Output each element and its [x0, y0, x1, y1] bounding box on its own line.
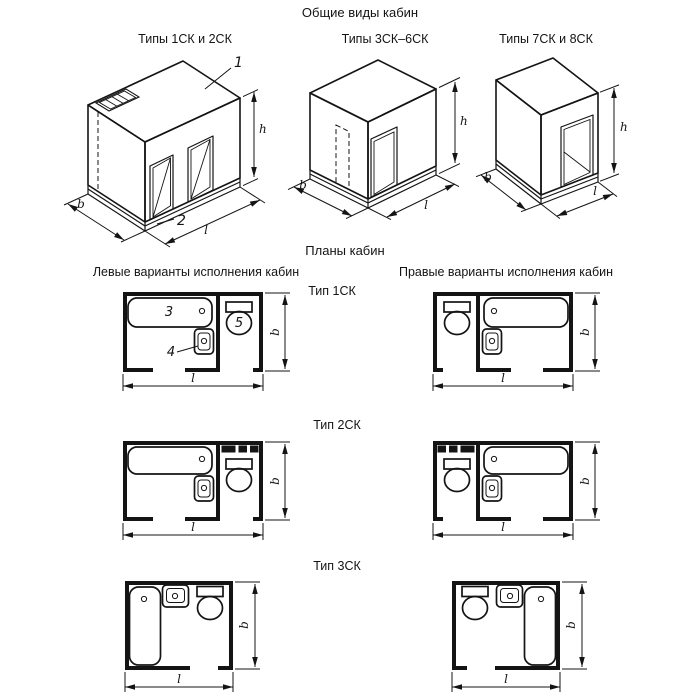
washbasin	[195, 329, 214, 354]
dimension-h: h	[439, 78, 468, 174]
dimension-l: l	[433, 371, 573, 391]
dim-l-label: l	[191, 520, 195, 534]
dimension-b: b	[265, 442, 290, 520]
dim-h-label: h	[620, 120, 628, 134]
plan-3sk-right: l b	[444, 574, 604, 699]
dim-b-label: b	[578, 477, 592, 485]
dim-l-label: l	[504, 672, 508, 686]
dim-h-label: h	[460, 114, 468, 128]
dim-b-label: b	[77, 197, 85, 211]
dimension-b: b	[476, 169, 541, 212]
dim-b-label: b	[484, 170, 492, 184]
front-doors	[150, 136, 213, 220]
view1-title: Типы 1СК и 2СК	[105, 32, 265, 47]
dimension-b: b	[235, 582, 260, 669]
dim-l-label: l	[593, 184, 597, 198]
dimension-l: l	[145, 187, 265, 247]
bathtub	[130, 587, 161, 665]
plan-3sk-left: l b	[117, 574, 277, 699]
dim-l-label: l	[191, 371, 195, 385]
type-3sk-label: Тип 3СК	[282, 559, 392, 574]
plan-1sk-left: 3 4 5 l b	[115, 285, 300, 395]
dimension-l: l	[123, 520, 263, 540]
dimension-l: l	[123, 371, 263, 391]
dimension-h: h	[243, 90, 267, 186]
callout-2-base: 2	[157, 213, 186, 229]
front-door	[371, 127, 397, 197]
dim-l-label: l	[204, 223, 208, 237]
washbasin	[163, 585, 189, 607]
dim-b-label: b	[268, 477, 282, 485]
type-2sk-label: Тип 2СК	[282, 418, 392, 433]
plan-2sk-right: l b	[425, 434, 610, 544]
dim-l-label: l	[501, 520, 505, 534]
toilet	[226, 459, 252, 492]
dim-b-label: b	[564, 621, 578, 629]
dim-h-label: h	[259, 122, 267, 136]
view2-title: Типы 3СК–6СК	[305, 32, 465, 47]
callout-4-washbasin: 4	[167, 345, 175, 360]
dimension-b: b	[562, 582, 587, 669]
view3-title: Типы 7СК и 8СК	[466, 32, 626, 47]
plan-1sk-right: l b	[425, 285, 610, 395]
plan-body	[123, 292, 263, 372]
dimension-b: b	[575, 442, 600, 520]
dimension-l: l	[433, 520, 573, 540]
dim-b-label: b	[237, 621, 251, 629]
isometric-view-types-7sk-8sk: h b l	[473, 52, 668, 237]
cabin-box	[310, 60, 436, 208]
plans-title: Планы кабин	[270, 243, 420, 258]
plan-body	[433, 292, 573, 372]
dimension-b: b	[575, 293, 600, 371]
dim-l-label: l	[177, 672, 181, 686]
hidden-side-door	[336, 125, 349, 190]
callout-1-roof: 1	[205, 55, 243, 89]
callout-3-bathtub: 3	[165, 305, 173, 320]
callout-1-label: 1	[234, 55, 243, 71]
bathtub	[128, 447, 212, 474]
dim-l-label: l	[501, 371, 505, 385]
toilet	[197, 587, 223, 620]
plan-body	[123, 441, 263, 521]
left-variants-heading: Левые варианты исполнения кабин	[66, 265, 326, 280]
dim-l-label: l	[424, 198, 428, 212]
dimension-h: h	[600, 85, 628, 181]
vent-block	[222, 446, 259, 453]
washbasin	[195, 476, 214, 501]
dimension-l: l	[452, 672, 560, 692]
dimension-b: b	[265, 293, 290, 371]
cabin-box	[88, 61, 240, 231]
dim-b-label: b	[299, 178, 307, 192]
plan-body	[433, 441, 573, 521]
roof-vent-grille	[96, 89, 139, 111]
isometric-view-types-3sk-6sk: h b l	[283, 55, 478, 235]
plan-body	[452, 581, 560, 670]
door-opening	[561, 115, 593, 187]
drawing-sheet: Общие виды кабин Типы 1СК и 2СК Типы 3СК…	[0, 0, 700, 700]
cabin-box	[496, 58, 598, 204]
callout-5-toilet: 5	[235, 316, 243, 331]
plan-2sk-left: l b	[115, 434, 300, 544]
right-variants-heading: Правые варианты исполнения кабин	[376, 265, 636, 280]
dim-b-label: b	[578, 328, 592, 336]
isometric-view-types-1sk-2sk: 1 2 h b l	[58, 53, 273, 248]
dimension-l: l	[368, 175, 459, 220]
dim-b-label: b	[268, 328, 282, 336]
callout-2-label: 2	[177, 213, 186, 229]
dimension-b: b	[288, 178, 368, 219]
plan-body	[125, 581, 233, 670]
dimension-l: l	[125, 672, 233, 692]
page-title: Общие виды кабин	[230, 5, 490, 20]
dimension-l: l	[541, 182, 617, 219]
